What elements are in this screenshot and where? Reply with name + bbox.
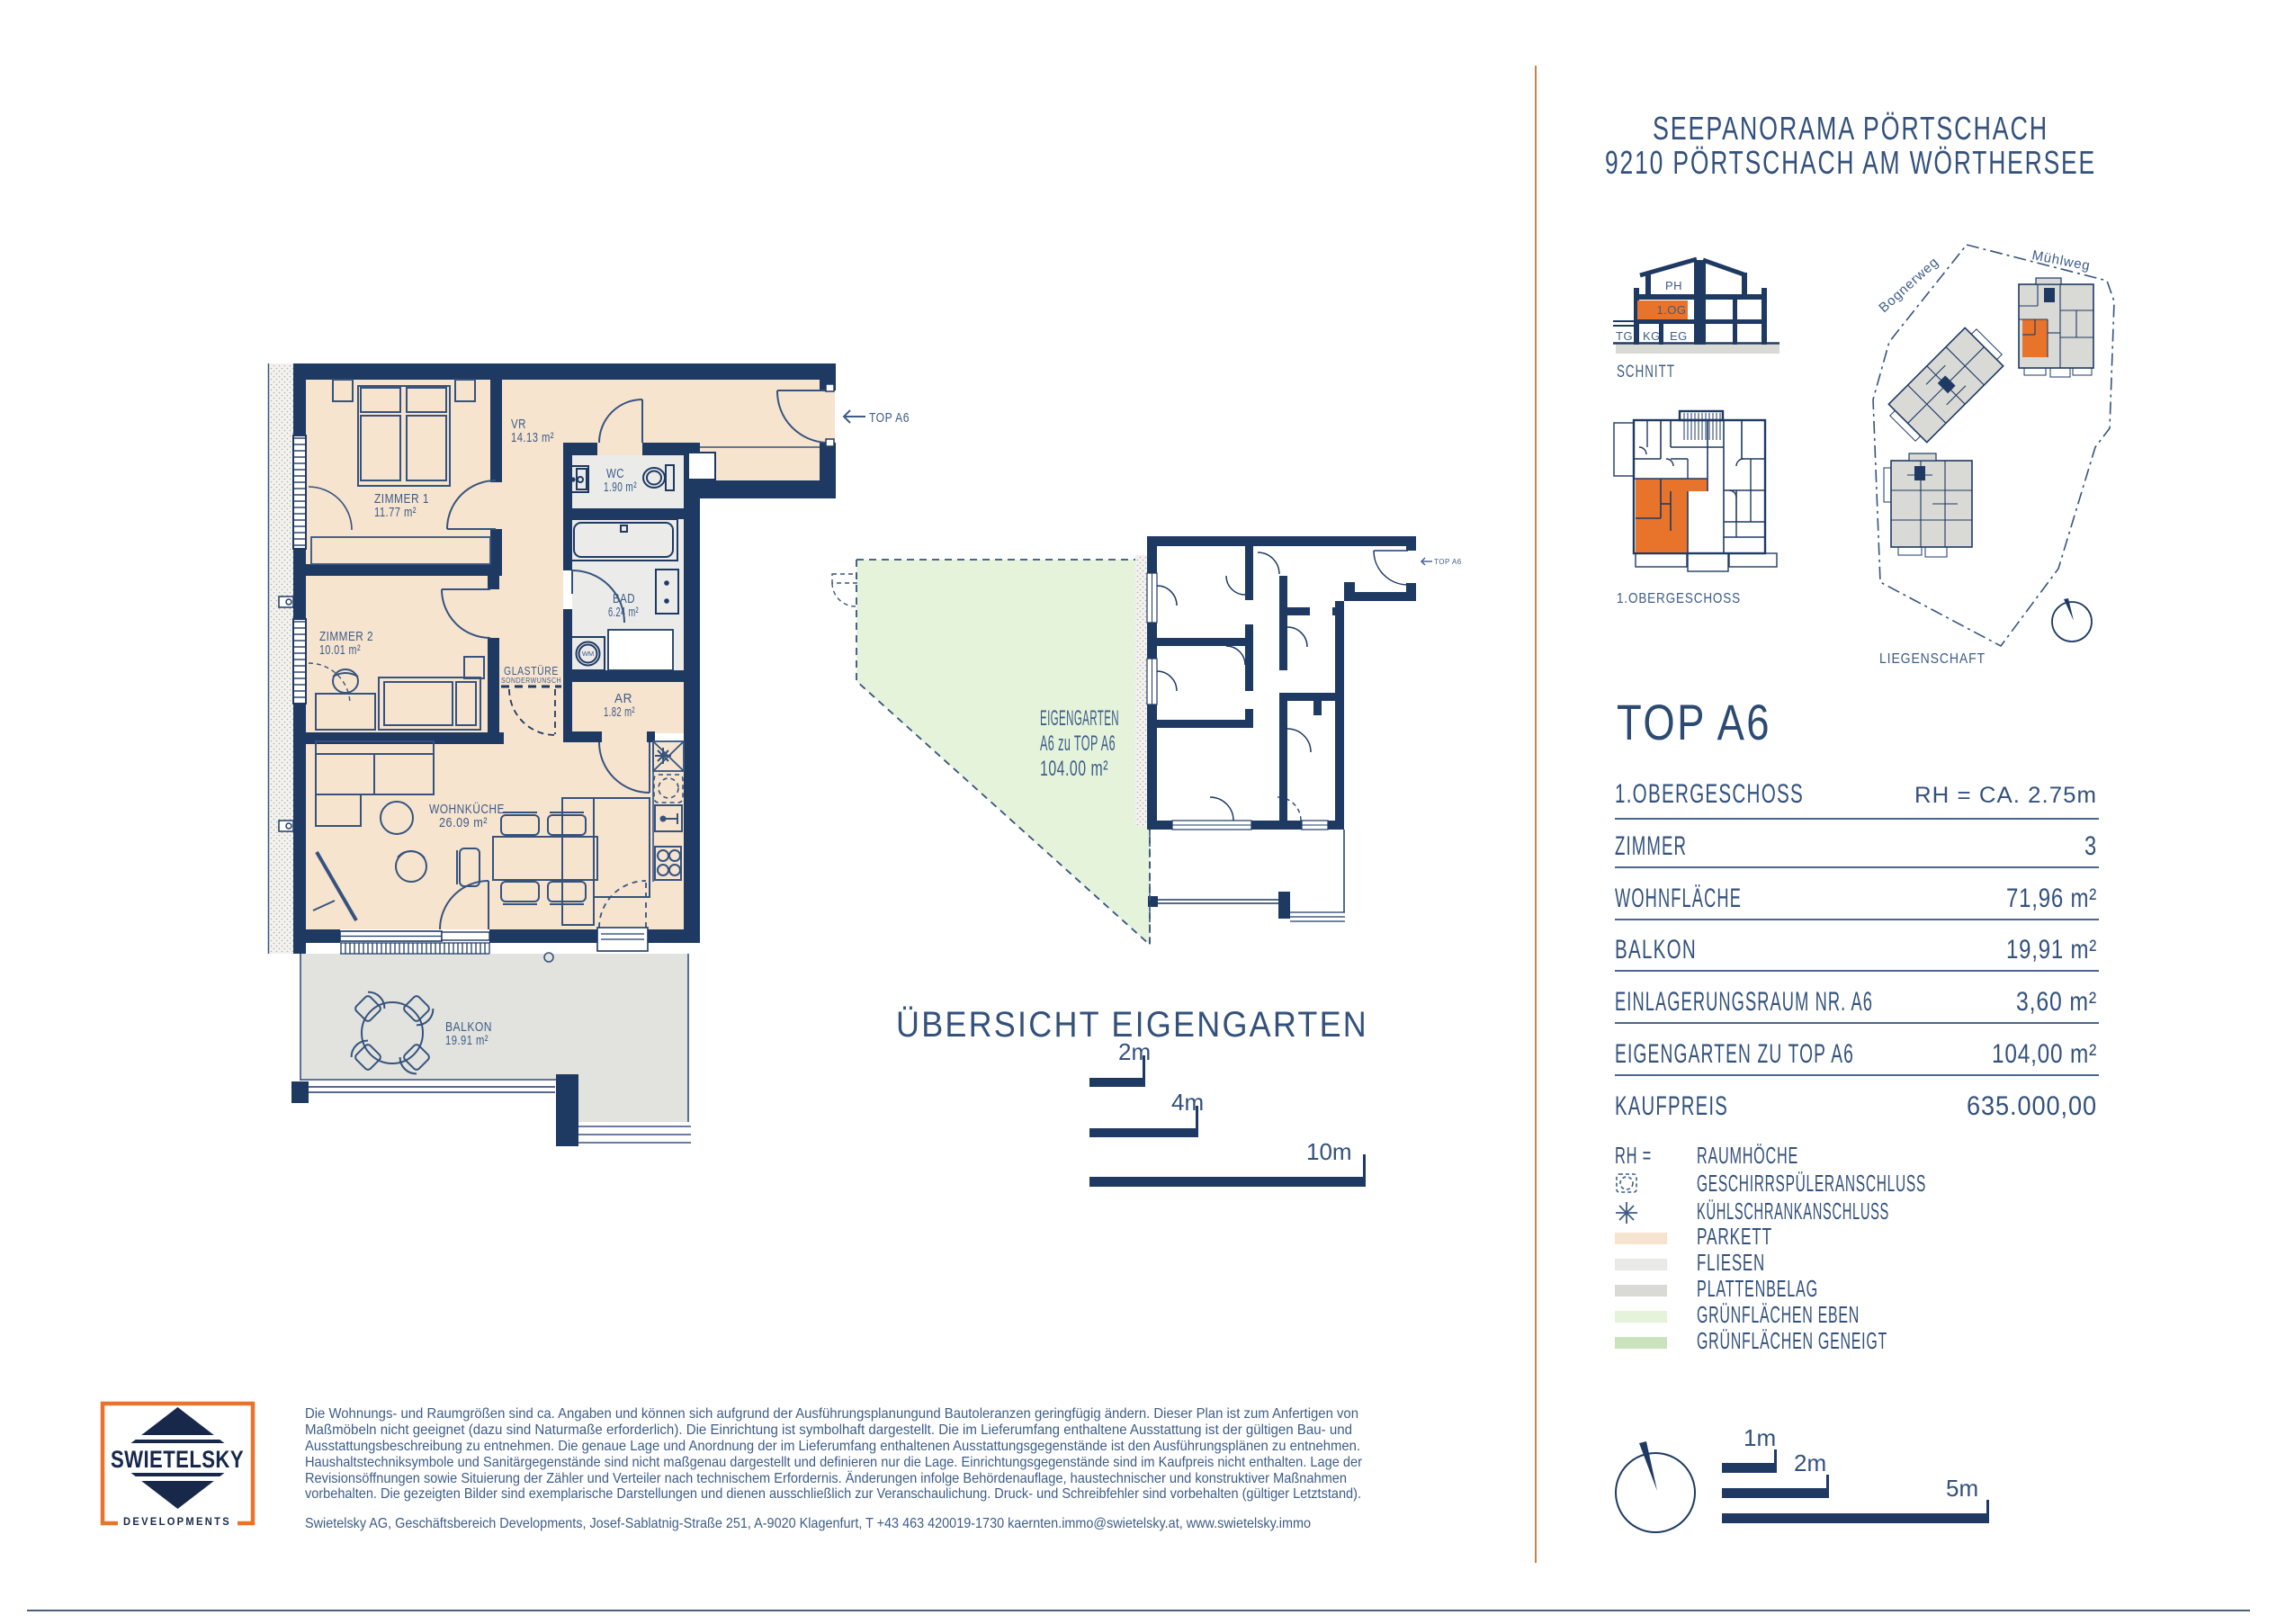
svg-text:Swietelsky AG, Geschäftsbereic: Swietelsky AG, Geschäftsbereich Developm… [305,1516,1311,1531]
svg-text:FLIESEN: FLIESEN [1697,1249,1765,1276]
svg-text:SCHNITT: SCHNITT [1617,363,1675,381]
svg-text:1.82 m²: 1.82 m² [604,704,635,720]
svg-text:1.OBERGESCHOSS: 1.OBERGESCHOSS [1615,779,1804,809]
svg-text:EIGENGARTEN: EIGENGARTEN [1040,706,1119,731]
svg-text:19.91 m²: 19.91 m² [445,1033,489,1048]
svg-text:Mühlweg: Mühlweg [2030,247,2092,274]
svg-text:11.77 m²: 11.77 m² [374,505,417,520]
svg-text:EINLAGERUNGSRAUM NR. A6: EINLAGERUNGSRAUM NR. A6 [1615,987,1873,1017]
svg-text:LIEGENSCHAFT: LIEGENSCHAFT [1879,651,1986,667]
svg-text:14.13 m²: 14.13 m² [511,430,554,445]
svg-text:EG: EG [1670,329,1688,343]
svg-text:19,91 m²: 19,91 m² [2006,935,2097,965]
svg-text:KG: KG [1643,329,1661,343]
svg-text:RAUMHÖCHE: RAUMHÖCHE [1697,1142,1798,1169]
svg-text:BALKON: BALKON [1615,935,1697,965]
svg-text:Maßmöbeln nicht geeignet (dazu: Maßmöbeln nicht geeignet (dazu sind Natu… [305,1422,1352,1438]
svg-text:GLASTÜRE: GLASTÜRE [504,664,559,677]
svg-text:4m: 4m [1171,1089,1204,1116]
svg-text:TOP A6: TOP A6 [1617,694,1771,750]
svg-text:RH =: RH = [1615,1142,1652,1169]
svg-text:SEEPANORAMA PÖRTSCHACH: SEEPANORAMA PÖRTSCHACH [1653,110,2048,147]
svg-text:2m: 2m [1118,1038,1151,1065]
svg-text:TOP A6: TOP A6 [1434,558,1462,566]
svg-text:A6 zu TOP A6: A6 zu TOP A6 [1040,731,1116,756]
svg-text:TOP A6: TOP A6 [869,410,910,426]
svg-text:Revisionsöffnungen sowie Situi: Revisionsöffnungen sowie Situierung der … [305,1470,1347,1486]
svg-text:ZIMMER: ZIMMER [1615,831,1687,861]
svg-text:104,00 m²: 104,00 m² [1992,1039,2097,1069]
svg-text:71,96 m²: 71,96 m² [2006,884,2097,913]
svg-text:PLATTENBELAG: PLATTENBELAG [1697,1275,1818,1302]
svg-text:635.000,00: 635.000,00 [1967,1091,2097,1121]
svg-text:vorbehalten. Die gezeigten Bil: vorbehalten. Die gezeigten Bilder sind e… [305,1486,1361,1502]
svg-text:1.OBERGESCHOSS: 1.OBERGESCHOSS [1617,591,1741,606]
svg-text:6.24 m²: 6.24 m² [608,605,639,620]
svg-text:1.OG: 1.OG [1656,303,1686,317]
svg-text:TG: TG [1616,329,1633,343]
svg-text:3: 3 [2084,831,2097,861]
svg-text:1m: 1m [1744,1424,1776,1451]
svg-text:26.09 m²: 26.09 m² [439,815,488,830]
svg-text:WM: WM [582,650,594,658]
svg-text:9210 PÖRTSCHACH AM WÖRTHERSEE: 9210 PÖRTSCHACH AM WÖRTHERSEE [1605,144,2096,181]
svg-text:GRÜNFLÄCHEN GENEIGT: GRÜNFLÄCHEN GENEIGT [1697,1327,1887,1354]
svg-text:Haushaltstechniksymbole und Sa: Haushaltstechniksymbole und Sanitärgegen… [305,1455,1363,1470]
svg-text:Die Wohnungs- und Raumgrößen s: Die Wohnungs- und Raumgrößen sind ca. An… [305,1406,1358,1422]
svg-text:Bognerweg: Bognerweg [1876,255,1941,316]
svg-text:DEVELOPMENTS: DEVELOPMENTS [123,1515,231,1528]
svg-text:10.01 m²: 10.01 m² [319,642,361,658]
svg-text:EIGENGARTEN ZU TOP A6: EIGENGARTEN ZU TOP A6 [1615,1039,1854,1069]
svg-text:3,60 m²: 3,60 m² [2016,987,2097,1017]
svg-text:2m: 2m [1794,1449,1826,1476]
svg-text:WOHNFLÄCHE: WOHNFLÄCHE [1615,884,1742,913]
svg-text:1.90 m²: 1.90 m² [604,480,637,495]
svg-text:SWIETELSKY: SWIETELSKY [111,1446,244,1473]
svg-text:KAUFPREIS: KAUFPREIS [1615,1091,1728,1121]
svg-text:Ausstattungsbeschreibung zu en: Ausstattungsbeschreibung zu entnehmen. D… [305,1439,1360,1454]
svg-text:SONDERWUNSCH: SONDERWUNSCH [501,677,561,685]
svg-text:GESCHIRRSPÜLERANSCHLUSS: GESCHIRRSPÜLERANSCHLUSS [1697,1170,1926,1197]
svg-text:5m: 5m [1946,1475,1978,1502]
svg-text:GRÜNFLÄCHEN EBEN: GRÜNFLÄCHEN EBEN [1697,1301,1860,1328]
svg-text:RH = CA. 2.75m: RH = CA. 2.75m [1914,783,2097,808]
svg-text:KÜHLSCHRANKANSCHLUSS: KÜHLSCHRANKANSCHLUSS [1697,1198,1889,1225]
svg-text:104.00 m²: 104.00 m² [1040,757,1108,781]
svg-text:10m: 10m [1306,1138,1352,1165]
svg-text:PARKETT: PARKETT [1697,1223,1772,1250]
svg-text:PH: PH [1665,279,1682,292]
